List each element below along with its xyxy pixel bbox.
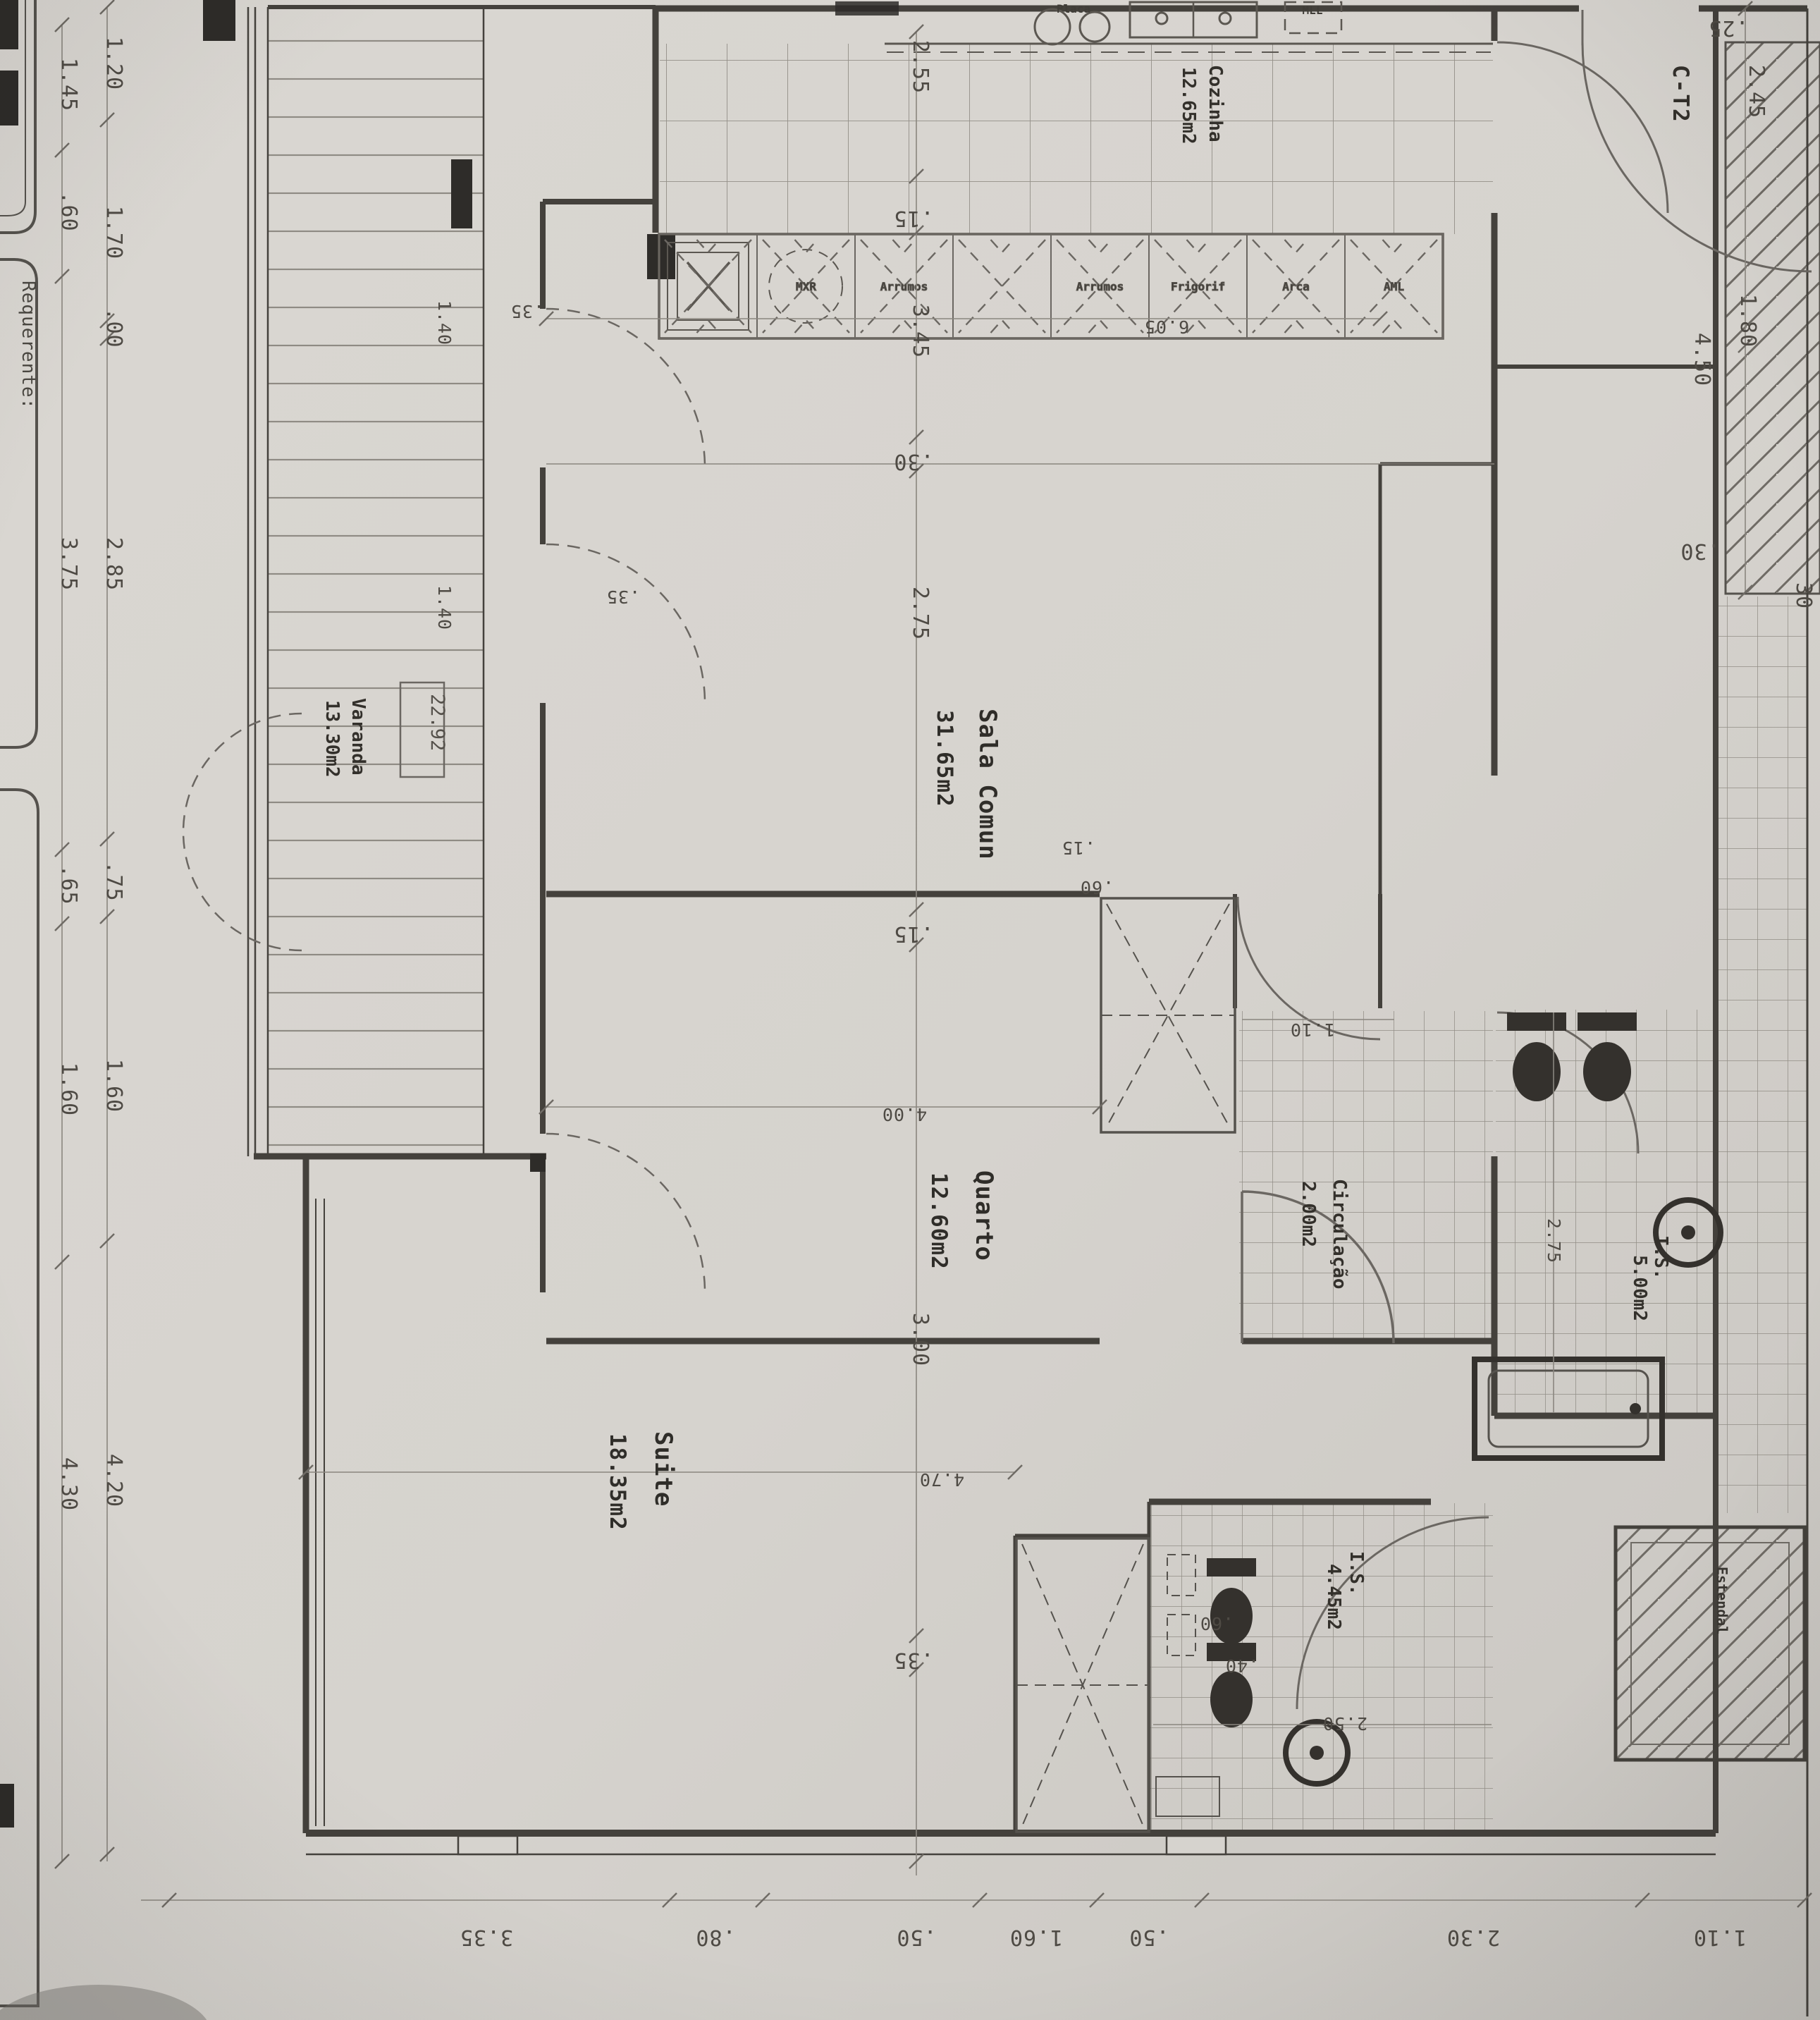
room-estendal-name: Estendal — [1714, 1567, 1730, 1634]
dim-label: .40 — [1225, 1655, 1259, 1676]
dim-label: 3.35 — [460, 1925, 513, 1949]
toilet1-tank — [1507, 1012, 1566, 1031]
dim-label: .80 — [695, 1925, 735, 1949]
hatch-zone-estendal — [1616, 1527, 1804, 1760]
dim-label: 1.60 — [102, 1059, 126, 1113]
room-is1-area: 5.00m2 — [1629, 1255, 1650, 1321]
dim-label: .25 — [1708, 16, 1748, 40]
room-varanda-area: 13.30m2 — [321, 700, 343, 778]
dim-label: 1.40 — [434, 585, 455, 630]
dim-label: 2.50 — [1322, 1713, 1367, 1734]
dim-label: .50 — [1129, 1925, 1169, 1949]
dim-label: 1.10 — [1693, 1925, 1747, 1949]
kitchen-unit-label: Arca — [1282, 280, 1310, 293]
dim-label: 6.05 — [1144, 317, 1189, 337]
window-bar-kitchen — [835, 1, 899, 16]
dim-label: .60 — [56, 191, 81, 231]
room-suite-name: Suite — [649, 1431, 677, 1507]
dim-label: 4.00 — [882, 1104, 927, 1125]
room-varanda-name: Varanda — [348, 698, 369, 776]
column-small — [530, 1153, 546, 1172]
dim-label: .60 — [1080, 877, 1114, 898]
dim-label: 1.10 — [1290, 1020, 1335, 1040]
room-is2-area: 4.45m2 — [1323, 1564, 1344, 1630]
dim-label: .60 — [1200, 1613, 1234, 1634]
unit-type-label: C-T2 — [1668, 65, 1693, 123]
room-circulacao-name: Circulação — [1329, 1179, 1350, 1290]
section-mark — [203, 0, 235, 41]
kitchen-unit-label: Frigorif — [1171, 280, 1225, 293]
dim-label: 4.30 — [56, 1457, 81, 1511]
dim-label: .35 — [893, 1648, 933, 1672]
room-sala-name: Sala Comun — [973, 709, 1002, 860]
room-cozinha-area: 12.65m2 — [1178, 67, 1199, 145]
window-sill-1 — [458, 1836, 517, 1854]
titleblock-bar-2 — [0, 71, 18, 126]
dim-label: 1.60 — [1009, 1925, 1063, 1949]
dim-label: 3.00 — [908, 1313, 933, 1366]
dim-label: 2.30 — [1446, 1925, 1500, 1949]
column-kitchen — [647, 234, 675, 279]
kitchen-unit-label: AML — [1384, 280, 1404, 293]
floor-plan-drawing: MXRArrumosArrumosFrigorifArcaAML — [0, 0, 1820, 2020]
room-is1-name: I.S. — [1650, 1235, 1671, 1280]
dim-label: .30 — [893, 449, 933, 474]
kitchen-unit-label: MXR — [796, 280, 816, 293]
dim-label: .15 — [893, 922, 933, 946]
dim-label: 1.60 — [56, 1063, 81, 1116]
dim-label: 1.40 — [434, 300, 455, 345]
dim-label: .35 — [510, 301, 544, 322]
dim-label: 3.45 — [908, 305, 933, 358]
dim-label: 1.20 — [102, 37, 126, 90]
dim-label: .00 — [102, 307, 126, 348]
floor-plan-photo: MXRArrumosArrumosFrigorifArcaAML — [0, 0, 1820, 2020]
dim-label: .35 — [606, 587, 640, 607]
dim-label: 1.70 — [102, 206, 126, 259]
right-strip-tiles — [1718, 596, 1807, 1513]
dim-label: 3.75 — [56, 537, 81, 591]
titleblock-requerente-label: Requerente: — [18, 281, 39, 410]
dim-label: .15 — [893, 206, 933, 231]
dim-label: .15 — [1062, 838, 1095, 858]
dim-label: 4.50 — [1690, 333, 1714, 386]
room-cozinha-name: Cozinha — [1205, 65, 1226, 142]
room-circulacao-area: 2.00m2 — [1298, 1181, 1319, 1247]
dim-label: 1.80 — [1735, 294, 1760, 348]
dim-label: 4.20 — [102, 1454, 126, 1507]
dim-label: 2.55 — [908, 40, 933, 94]
dim-label: 4.70 — [919, 1469, 964, 1490]
bidet2-bowl — [1210, 1671, 1253, 1727]
kitchen-unit-label: Arrumos — [880, 280, 928, 293]
washbasin2-drain — [1310, 1746, 1324, 1760]
kitchen-unit-label: Arrumos — [1076, 280, 1124, 293]
bidet1-bowl — [1583, 1042, 1631, 1101]
dim-label: .30 — [1680, 539, 1720, 563]
room-quarto-area: 12.60m2 — [926, 1173, 952, 1270]
bidet1-tank — [1578, 1012, 1637, 1031]
kitchen-hob-label: Placa — [1057, 2, 1090, 16]
kitchen-dishwasher-label: MLL — [1303, 4, 1323, 17]
kitchen-tiles — [660, 44, 1493, 234]
dim-label: 30 — [1791, 582, 1816, 609]
level-marker-value: 22.92 — [426, 694, 448, 751]
titleblock-bar-1 — [0, 0, 18, 49]
washbasin1-drain — [1681, 1225, 1695, 1239]
dim-label: .50 — [896, 1925, 936, 1949]
room-sala-area: 31.65m2 — [932, 710, 957, 807]
circulation-tiles — [1239, 1011, 1493, 1341]
room-quarto-name: Quarto — [970, 1170, 998, 1261]
dim-label: 2.75 — [908, 587, 933, 640]
toilet2-tank — [1207, 1558, 1256, 1577]
window-sill-2 — [1167, 1836, 1226, 1854]
dim-label: 2.45 — [1744, 65, 1769, 118]
bathtub-drain — [1630, 1403, 1641, 1414]
titleblock-bar-3 — [0, 1784, 14, 1828]
column-varanda — [451, 159, 472, 228]
dim-label: .65 — [56, 864, 81, 905]
room-suite-area: 18.35m2 — [605, 1433, 630, 1531]
dim-label: 2.75 — [1544, 1218, 1564, 1263]
room-is2-name: I.S. — [1346, 1551, 1367, 1596]
dim-label: 2.85 — [102, 537, 126, 591]
dim-label: .75 — [102, 861, 126, 901]
dim-label: 1.45 — [56, 58, 81, 111]
